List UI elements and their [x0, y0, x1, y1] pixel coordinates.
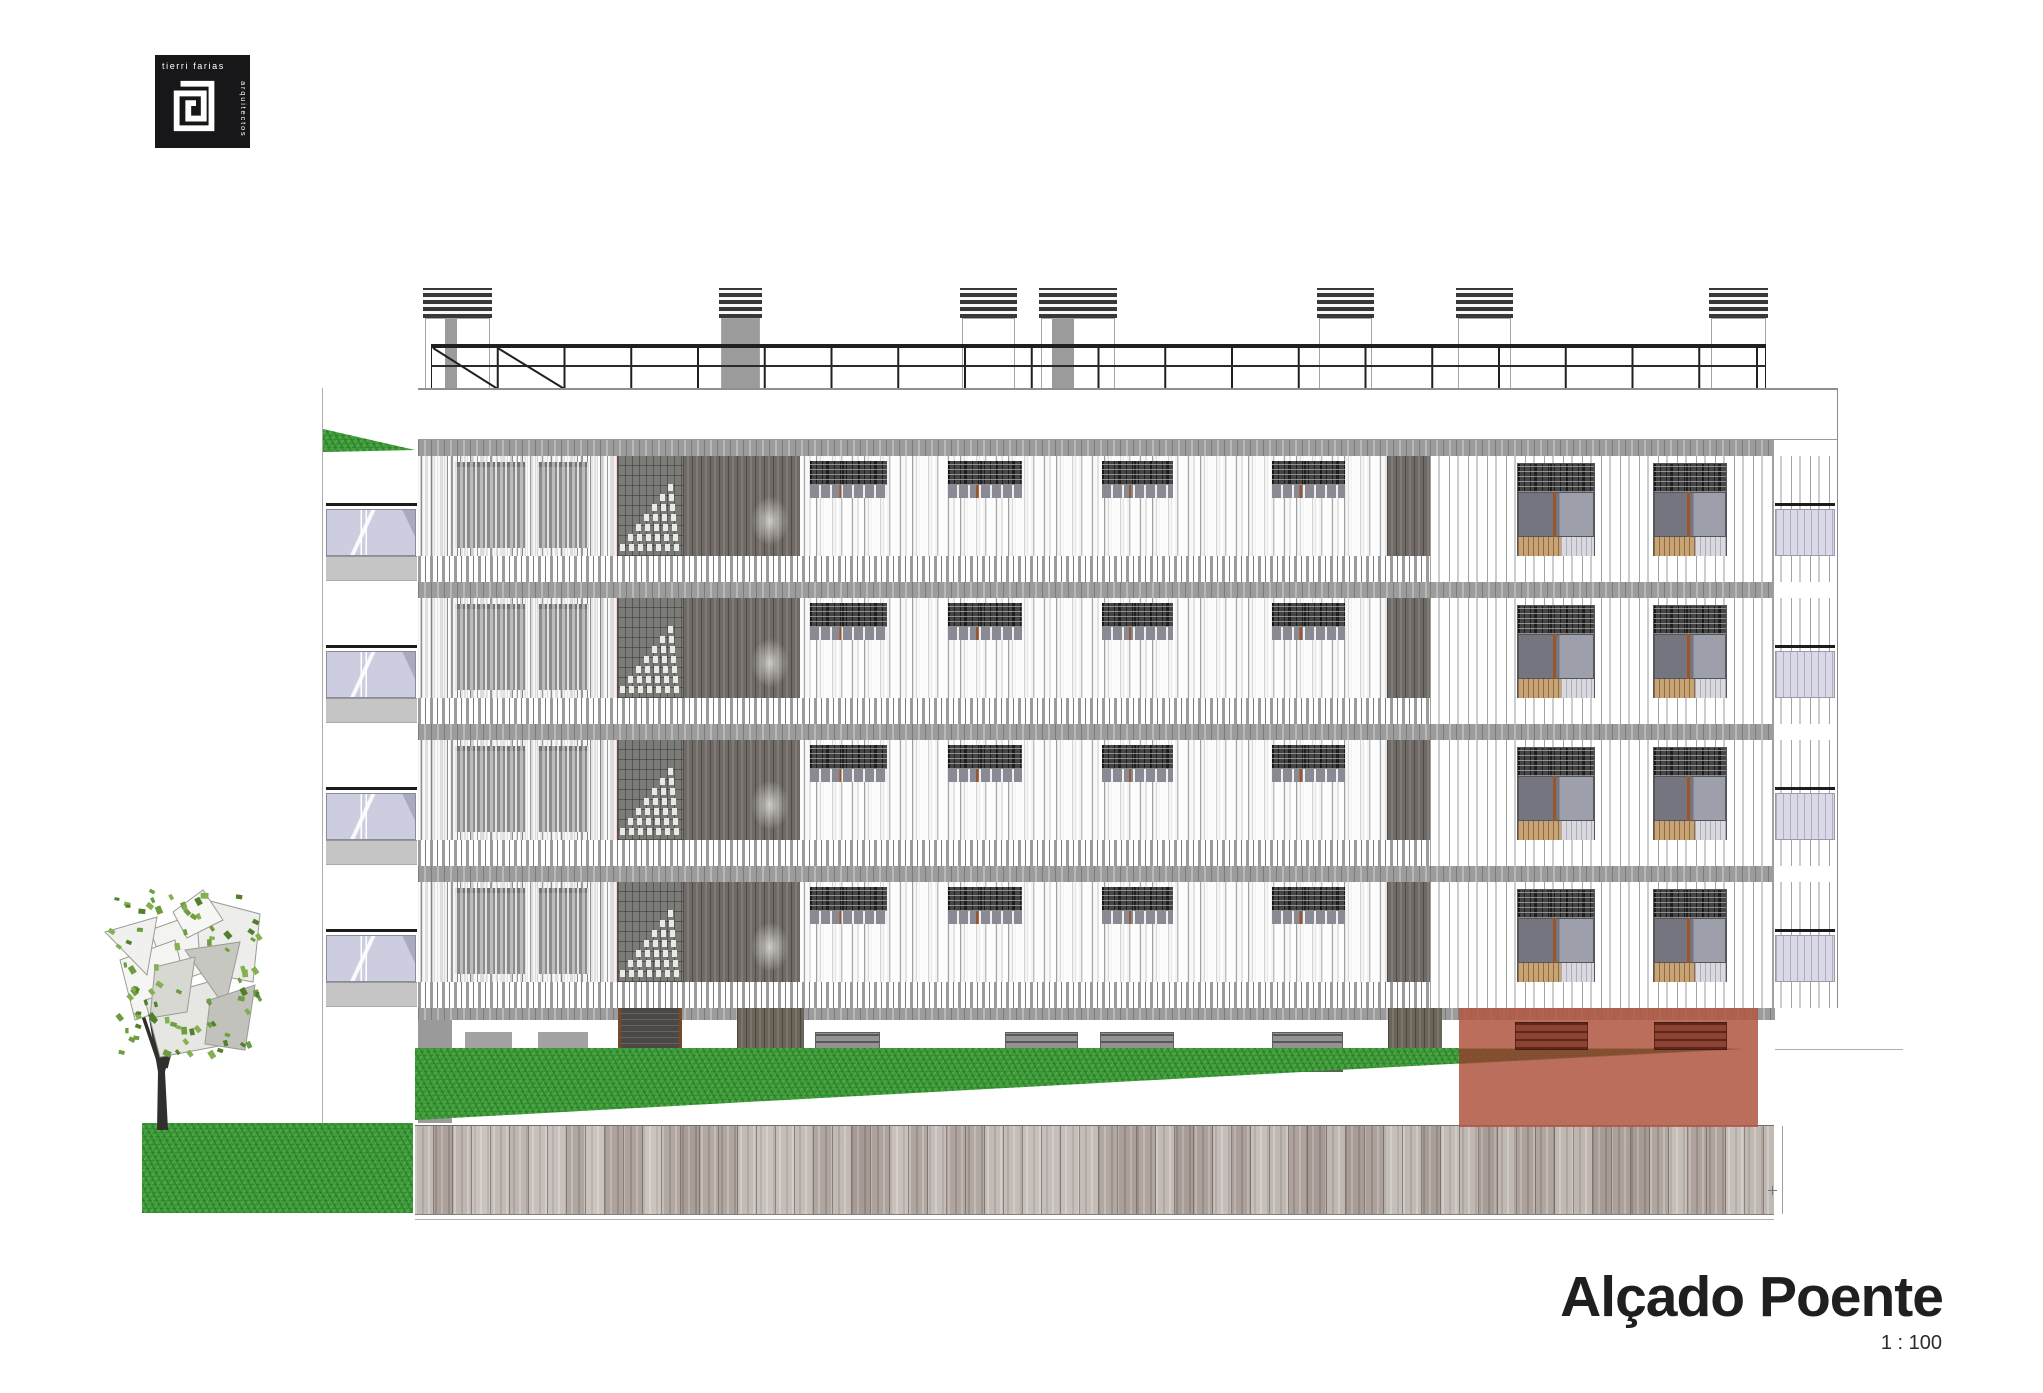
wood-plank — [1498, 1126, 1517, 1214]
stair-step — [655, 534, 660, 541]
wood-plank — [1042, 1126, 1061, 1214]
balcony-rail — [1775, 503, 1835, 506]
window-sill — [1561, 679, 1594, 698]
stair-step — [629, 970, 634, 977]
wood-plank — [1194, 1126, 1213, 1214]
stair-step — [644, 656, 649, 663]
stair-step — [654, 808, 659, 815]
wood-plank — [1251, 1126, 1270, 1214]
wood-plank — [662, 1126, 681, 1214]
stair-step — [673, 818, 678, 825]
balcony-glass — [326, 509, 416, 556]
stair-step — [660, 494, 665, 501]
chimney-vent-cap — [960, 288, 1017, 318]
stair-step — [662, 798, 667, 805]
wood-plank — [529, 1126, 548, 1214]
window-sill — [1561, 963, 1594, 982]
window-grille — [948, 745, 1022, 769]
stair-step — [674, 686, 679, 693]
stair-step — [645, 524, 650, 531]
wood-plank — [548, 1126, 567, 1214]
grille-glass — [1102, 485, 1173, 498]
window-grille — [948, 461, 1022, 485]
stair-step — [646, 960, 651, 967]
stair-step — [644, 798, 649, 805]
window-frame-accent — [1687, 492, 1690, 537]
window-blind-box — [1654, 464, 1726, 492]
stair-step — [628, 676, 633, 683]
window-grille — [810, 461, 887, 485]
logo-spiral-icon — [167, 75, 225, 137]
garage-door-grille — [1654, 1022, 1727, 1050]
louver-screen — [455, 888, 525, 974]
wood-plank — [1688, 1126, 1707, 1214]
floor-beam-band — [418, 724, 1430, 740]
stair-step — [660, 778, 665, 785]
stair-step — [637, 534, 642, 541]
stair-step — [620, 686, 625, 693]
balcony-rail — [1775, 787, 1835, 790]
wood-plank — [453, 1126, 472, 1214]
window-body — [1654, 634, 1726, 679]
stair-step — [628, 960, 633, 967]
wood-plank — [1023, 1126, 1042, 1214]
stair-step — [674, 828, 679, 835]
window-body — [1654, 492, 1726, 537]
stair-step — [663, 808, 668, 815]
stair-step — [663, 524, 668, 531]
window-body — [1654, 776, 1726, 821]
stair-step — [654, 524, 659, 531]
wood-plank — [472, 1126, 491, 1214]
window-grille — [1102, 745, 1173, 769]
stair-step — [670, 504, 675, 511]
stair-step — [646, 676, 651, 683]
wood-plank — [624, 1126, 643, 1214]
stair-step — [629, 544, 634, 551]
window-sill — [1518, 537, 1561, 556]
window-blind-box — [1518, 890, 1594, 918]
stair-step — [672, 808, 677, 815]
wood-plank — [1612, 1126, 1631, 1214]
stair-step — [638, 828, 643, 835]
wood-plank — [1156, 1126, 1175, 1214]
wood-plank — [1707, 1126, 1726, 1214]
stair-step — [654, 666, 659, 673]
stair-step — [671, 798, 676, 805]
grille-glass — [948, 627, 1022, 640]
window-grille — [1102, 603, 1173, 627]
window-sill — [1695, 963, 1726, 982]
interfloor-band — [418, 982, 1430, 1008]
stair-step — [656, 544, 661, 551]
pier-smudge — [751, 496, 789, 546]
window-grille — [810, 603, 887, 627]
wood-plank — [643, 1126, 662, 1214]
window-grille — [1102, 461, 1173, 485]
window-sill — [1654, 963, 1695, 982]
grille-glass — [810, 769, 887, 782]
balcony-rail — [326, 645, 417, 648]
ground-wood-pier — [1388, 1008, 1442, 1049]
stair-step — [636, 950, 641, 957]
stair-step — [628, 818, 633, 825]
window-sill — [1518, 679, 1561, 698]
stair-step — [673, 676, 678, 683]
stair-step — [669, 636, 674, 643]
louver-screen — [537, 462, 589, 548]
window-sill — [1518, 963, 1561, 982]
window-sill — [1518, 821, 1561, 840]
ground-base-line — [415, 1219, 1774, 1220]
wood-plank — [871, 1126, 890, 1214]
wood-plank — [1118, 1126, 1137, 1214]
wood-plank — [1137, 1126, 1156, 1214]
wood-plank — [1726, 1126, 1745, 1214]
wood-plank — [814, 1126, 833, 1214]
stair-step — [646, 818, 651, 825]
stair-step — [672, 950, 677, 957]
stair-step — [663, 666, 668, 673]
wood-plank — [1061, 1126, 1080, 1214]
balcony-rail — [1775, 645, 1835, 648]
tree — [95, 872, 280, 1134]
window-grille — [948, 887, 1022, 911]
floor-beam-band — [1430, 866, 1773, 882]
stair-step — [629, 828, 634, 835]
stair-step — [670, 788, 675, 795]
wood-plank — [1308, 1126, 1327, 1214]
logo-studio-name: tierri farias — [162, 61, 243, 71]
floor-beam-band — [418, 582, 1430, 598]
wood-plank — [1232, 1126, 1251, 1214]
chimney-vent-cap — [1317, 288, 1374, 318]
wood-plank — [795, 1126, 814, 1214]
stair-step — [665, 686, 670, 693]
stair-step — [655, 960, 660, 967]
stair-step — [661, 788, 666, 795]
balcony-glass — [1775, 793, 1835, 840]
stair-step — [620, 828, 625, 835]
wood-plank — [1289, 1126, 1308, 1214]
left-wall-column — [322, 388, 418, 1123]
stair-step — [662, 514, 667, 521]
grille-glass — [1102, 769, 1173, 782]
stair-step — [663, 950, 668, 957]
grille-glass — [810, 627, 887, 640]
stair-step — [654, 950, 659, 957]
stair-step — [669, 920, 674, 927]
wood-plank — [434, 1126, 453, 1214]
floor-beam-band — [1430, 724, 1773, 740]
window-blind-box — [1518, 748, 1594, 776]
balcony-rail — [1775, 929, 1835, 932]
balcony-slab — [326, 698, 417, 723]
wood-plank — [1346, 1126, 1365, 1214]
chimney-vent-cap — [1039, 288, 1117, 318]
window-sill — [1695, 537, 1726, 556]
window-body — [1518, 918, 1594, 963]
wood-plank — [1764, 1126, 1783, 1214]
window-sill — [1561, 537, 1594, 556]
louver-screen — [537, 604, 589, 690]
wood-plank — [852, 1126, 871, 1214]
stair-step — [620, 970, 625, 977]
window-frame-accent — [1687, 918, 1690, 963]
balcony-glass — [1775, 935, 1835, 982]
stair-step — [662, 656, 667, 663]
window-frame-accent — [1553, 918, 1556, 963]
facade-right-edge — [1837, 388, 1838, 1008]
garage-door-grille — [1515, 1022, 1588, 1050]
drawing-scale: 1 : 100 — [1881, 1332, 1942, 1355]
window-grille — [810, 887, 887, 911]
stair-step — [655, 676, 660, 683]
stair-step — [644, 940, 649, 947]
roof-parapet — [323, 388, 1837, 440]
stair-step — [660, 636, 665, 643]
wood-plank — [1403, 1126, 1422, 1214]
stair-step — [655, 818, 660, 825]
floor-beam-band — [1430, 440, 1773, 456]
wood-plank — [567, 1126, 586, 1214]
window-frame-accent — [1553, 634, 1556, 679]
chimney-vent-cap — [1709, 288, 1768, 318]
stair-step — [637, 818, 642, 825]
window-blind-box — [1518, 606, 1594, 634]
window-frame-accent — [1687, 776, 1690, 821]
grille-glass — [1272, 485, 1345, 498]
window-sill — [1695, 679, 1726, 698]
stair-step — [620, 544, 625, 551]
wood-plank — [833, 1126, 852, 1214]
ground-wood-pier — [737, 1008, 804, 1050]
wood-plank — [1669, 1126, 1688, 1214]
wood-plank — [1479, 1126, 1498, 1214]
stair-step — [672, 524, 677, 531]
stair-step — [637, 960, 642, 967]
balcony-slab — [326, 982, 417, 1007]
wood-plank — [1365, 1126, 1384, 1214]
wood-plank — [1422, 1126, 1441, 1214]
wood-plank — [985, 1126, 1004, 1214]
roof-guardrail — [431, 342, 1766, 392]
stair-step — [656, 686, 661, 693]
stair-step — [671, 940, 676, 947]
stair-step — [661, 504, 666, 511]
stair-step — [653, 798, 658, 805]
louver-screen — [455, 462, 525, 548]
stair-step — [637, 676, 642, 683]
wood-plank — [681, 1126, 700, 1214]
stair-step — [670, 930, 675, 937]
interfloor-band — [418, 698, 1430, 724]
wood-plank — [1650, 1126, 1669, 1214]
stair-step — [653, 940, 658, 947]
balcony-glass — [326, 651, 416, 698]
window-grille — [1272, 461, 1345, 485]
stair-step — [636, 666, 641, 673]
window-sill — [1695, 821, 1726, 840]
chimney-vent-cap — [423, 288, 492, 318]
stair-step — [664, 534, 669, 541]
drawing-title: Alçado Poente — [1560, 1264, 1943, 1330]
stair-step — [652, 504, 657, 511]
floor-beam-band — [418, 440, 1430, 456]
wood-plank — [1593, 1126, 1612, 1214]
grille-glass — [1102, 911, 1173, 924]
stair-step — [645, 666, 650, 673]
grille-glass — [948, 485, 1022, 498]
wood-plank — [1555, 1126, 1574, 1214]
window-frame-accent — [1687, 634, 1690, 679]
balcony-glass — [1775, 651, 1835, 698]
louver-screen — [455, 604, 525, 690]
balcony-glass — [1775, 509, 1835, 556]
pier-smudge — [751, 780, 789, 830]
facade-pier — [1387, 456, 1430, 556]
window-body — [1518, 634, 1594, 679]
window-grille — [948, 603, 1022, 627]
stair-step — [645, 808, 650, 815]
stair-step — [652, 646, 657, 653]
window-grille — [810, 745, 887, 769]
window-sill — [1654, 679, 1695, 698]
wood-plank — [1327, 1126, 1346, 1214]
wood-plank — [757, 1126, 776, 1214]
wood-plank — [510, 1126, 529, 1214]
window-sill — [1654, 821, 1695, 840]
stair-step — [665, 970, 670, 977]
stair-step — [668, 768, 673, 775]
louver-screen — [537, 746, 589, 832]
window-body — [1518, 776, 1594, 821]
balcony-rail — [326, 787, 417, 790]
stair-step — [665, 828, 670, 835]
foreground-grass — [142, 1123, 413, 1213]
wood-plank — [1213, 1126, 1232, 1214]
stair-step — [660, 920, 665, 927]
stair-step — [636, 524, 641, 531]
wood-plank — [1004, 1126, 1023, 1214]
stair-step — [638, 686, 643, 693]
pier-smudge — [751, 922, 789, 972]
louver-screen — [455, 746, 525, 832]
pier-smudge — [751, 638, 789, 688]
floor-beam-band — [418, 866, 1430, 882]
stair-step — [664, 818, 669, 825]
window-body — [1518, 492, 1594, 537]
wood-plank — [491, 1126, 510, 1214]
wood-plank — [1270, 1126, 1289, 1214]
stair-step — [644, 514, 649, 521]
stair-step — [628, 534, 633, 541]
stair-step — [664, 676, 669, 683]
stair-step — [671, 656, 676, 663]
stair-step — [661, 646, 666, 653]
recess-divider — [1773, 440, 1774, 1008]
stair-step — [653, 514, 658, 521]
stair-step — [672, 666, 677, 673]
stair-step — [668, 910, 673, 917]
window-frame-accent — [1553, 776, 1556, 821]
stair-step — [668, 626, 673, 633]
wood-plank — [586, 1126, 605, 1214]
stair-step — [664, 960, 669, 967]
wood-plank — [928, 1126, 947, 1214]
grille-glass — [810, 911, 887, 924]
window-sill — [1561, 821, 1594, 840]
wood-plank — [738, 1126, 757, 1214]
stair-step — [638, 544, 643, 551]
stair-step — [647, 686, 652, 693]
wood-plank — [415, 1126, 434, 1214]
wood-plank — [890, 1126, 909, 1214]
chimney-vent-cap — [719, 288, 762, 318]
stair-step — [638, 970, 643, 977]
window-grille — [1272, 745, 1345, 769]
wood-plank — [776, 1126, 795, 1214]
wood-plank — [605, 1126, 624, 1214]
stair-step — [661, 930, 666, 937]
grille-glass — [1102, 627, 1173, 640]
wood-plank — [1631, 1126, 1650, 1214]
facade-pier — [1387, 740, 1430, 840]
wood-plank — [1517, 1126, 1536, 1214]
wood-plank — [1441, 1126, 1460, 1214]
stair-step — [629, 686, 634, 693]
stair-step — [669, 494, 674, 501]
facade-pier — [1387, 882, 1430, 982]
stair-step — [653, 656, 658, 663]
wood-plank — [1099, 1126, 1118, 1214]
grille-glass — [1272, 911, 1345, 924]
stair-step — [668, 484, 673, 491]
stair-step — [652, 788, 657, 795]
interfloor-band — [418, 556, 1430, 582]
stair-step — [656, 828, 661, 835]
site-ground-line — [1775, 1049, 1903, 1050]
stair-step — [636, 808, 641, 815]
interfloor-band — [418, 840, 1430, 866]
stair-step — [674, 970, 679, 977]
window-blind-box — [1518, 464, 1594, 492]
balcony-slab — [326, 840, 417, 865]
wood-plank — [1460, 1126, 1479, 1214]
stair-step — [646, 534, 651, 541]
grille-glass — [1272, 627, 1345, 640]
stair-step — [656, 970, 661, 977]
window-grille — [1272, 887, 1345, 911]
window-grille — [1272, 603, 1345, 627]
floor-beam-band — [1430, 582, 1773, 598]
wood-plank — [1536, 1126, 1555, 1214]
stair-step — [674, 544, 679, 551]
window-blind-box — [1654, 890, 1726, 918]
grille-glass — [1272, 769, 1345, 782]
louver-screen — [537, 888, 589, 974]
logo-profession-label: arquitectos — [239, 81, 248, 143]
wood-plank — [700, 1126, 719, 1214]
stair-step — [671, 514, 676, 521]
stair-step — [670, 646, 675, 653]
grille-glass — [948, 911, 1022, 924]
stair-step — [652, 930, 657, 937]
stair-step — [673, 534, 678, 541]
stair-step — [647, 828, 652, 835]
window-frame-accent — [1553, 492, 1556, 537]
wood-plank — [1384, 1126, 1403, 1214]
